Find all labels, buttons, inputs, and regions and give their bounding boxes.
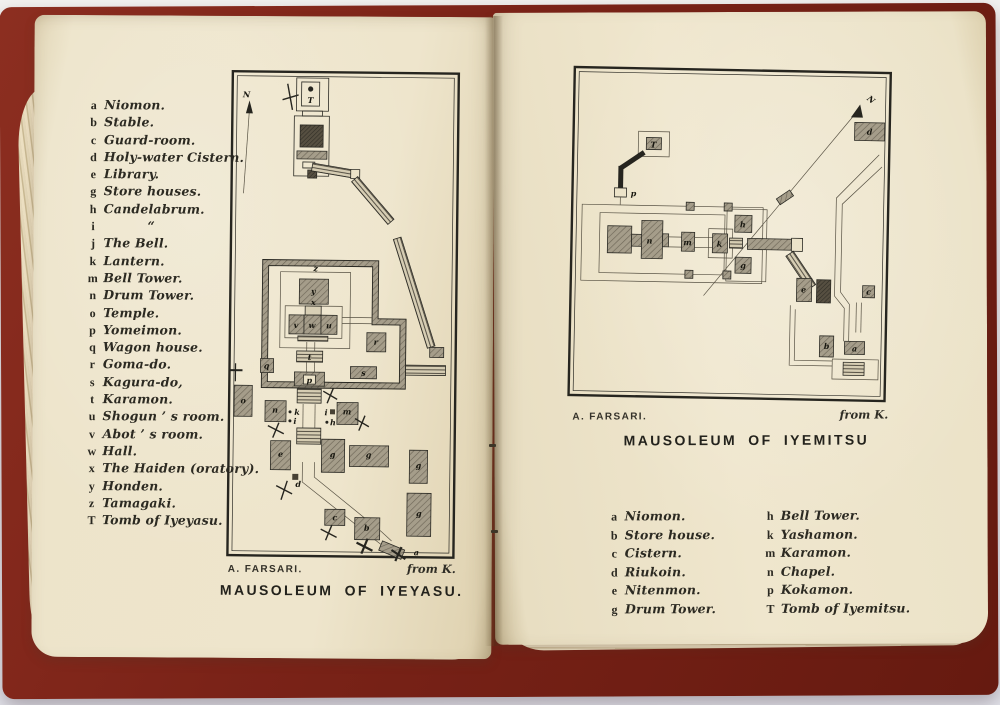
legend-item: cCistern. [607,545,763,564]
legend-item: mBell Tower. [85,270,235,288]
legend-key: j [85,236,100,251]
legend-label: Niomon. [104,97,165,112]
kokamon-gate: p [614,188,637,205]
library-building: e [270,441,290,470]
legend-key: d [86,150,101,165]
legend-key: m [763,546,778,561]
map-label-e: e [278,449,283,459]
legend-item: TTomb of Iyemitsu. [763,600,919,619]
iyemitsu-legend: aNiomon. bStore house. cCistern. dRiukoi… [607,507,919,620]
legend-label: Abot ’ s room. [102,426,203,442]
legend-label: Holy-water Cistern. [104,149,244,165]
map-label-d: d [295,479,301,489]
legend-label: Shogun ’ s room. [103,409,225,425]
legend-key: T [84,513,99,528]
right-page: N d T p [493,11,988,645]
svg-text:g: g [330,449,336,459]
legend-key: n [85,288,100,303]
legend-key: e [607,584,622,599]
niomon-gate-compound: b a [819,336,879,380]
legend-key: T [763,602,778,617]
source-note: from K. [407,562,456,576]
legend-item: gStore houses. [86,184,236,202]
legend-item: wHall. [84,443,234,461]
legend-label: Karamon. [781,545,851,560]
legend-key: n [763,565,778,580]
map-label-a: a [852,343,857,353]
legend-key: g [86,185,101,200]
map-label-i: i [324,407,327,417]
legend-item: xThe Haiden (oratory). [84,460,234,478]
map-label-m: m [343,406,352,416]
map-label-p: p [307,375,313,385]
legend-label: Wagon house. [103,339,203,355]
map-label-b: b [824,341,830,351]
legend-label: Chapel. [781,563,835,578]
legend-key: m [85,271,100,286]
map-label-t: t [308,352,312,362]
legend-key: c [86,133,101,148]
legend-label: Yomeimon. [103,322,182,337]
legend-label: Guard-room. [104,132,195,147]
legend-label: Goma-do. [103,357,171,372]
legend-label: Honden. [102,478,163,493]
tomb-of-iyeyasu-enclosure: T [282,78,330,179]
legend-item: kYashamon. [763,526,919,545]
map-label-T: T [308,95,315,105]
stairway-path [729,189,818,290]
legend-label: Bell Tower. [781,508,860,523]
legend-item: vAbot ’ s room. [84,426,234,444]
roads [789,153,882,367]
map-label-p: p [631,188,637,198]
legend-item: kLantern. [85,253,235,271]
legend-key: s [85,375,100,390]
riukoin-building: d [854,122,884,141]
iyeyasu-legend: aNiomon. bStable. cGuard-room. dHoly-wat… [84,97,236,530]
legend-label: Tomb of Iyemitsu. [781,600,910,615]
legend-item: rGoma-do. [85,357,235,375]
legend-key: t [85,392,100,407]
svg-text:N: N [864,93,877,106]
map-label-m: m [683,237,692,247]
map-label-e: e [801,284,806,294]
legend-label: Nitenmon. [625,583,701,598]
legend-key: d [607,565,622,580]
legend-key: p [763,583,778,598]
iyemitsu-title: MAUSOLEUM OF IYEMITSU [586,431,906,448]
svg-text:N: N [242,89,251,99]
legend-label: Hall. [102,443,137,458]
map-label-c: c [866,287,871,297]
map-credits: A. FARSARI. from K. [572,407,888,422]
legend-key: h [763,509,778,524]
map-label-n: n [272,405,278,415]
yomeimon-gate: p [294,372,324,386]
legend-label: Lantern. [103,253,164,268]
legend-key: i [86,219,101,234]
map-label-z: z [312,263,318,273]
legend-key: k [85,254,100,269]
legend-item: gDrum Tower. [607,601,763,620]
legend-item: tKaramon. [85,391,235,409]
stable-building: b [354,518,379,554]
legend-item: TTomb of Iyeyasu. [84,512,234,530]
iyeyasu-plan: N T [225,69,461,562]
legend-item: hBell Tower. [763,507,919,526]
photo-background: aNiomon. bStable. cGuard-room. dHoly-wat… [0,0,1000,705]
legend-key: u [85,409,100,424]
legend-label: Drum Tower. [625,601,716,616]
map-label-c: c [332,512,337,522]
legend-key: q [85,340,100,355]
temple-building: o [229,363,253,416]
source-note: from K. [839,407,888,421]
legend-item: pKokamon. [763,582,919,601]
legend-ditto-mark: “ [104,218,155,233]
legend-item: uShogun ’ s room. [85,408,235,426]
iyemitsu-plan: N d T p [567,65,893,403]
photographer-credit: A. FARSARI. [228,564,303,575]
legend-item: zTamagaki. [84,495,234,513]
map-credits: A. FARSARI. from K. [228,561,456,576]
cistern: c [862,286,874,298]
legend-key: y [84,479,99,494]
legend-item: aNiomon. [607,508,763,527]
map-label-d: d [867,127,873,137]
map-label-h: h [740,219,746,229]
map-label-n: n [647,235,653,245]
legend-label: Stable. [104,114,154,129]
legend-item: i“ [86,218,236,236]
svg-text:g: g [416,508,422,518]
tomb-of-iyemitsu: T [621,131,670,189]
legend-item: nDrum Tower. [85,287,235,305]
legend-key: c [607,547,622,562]
inner-courtyard: z y x v w u t q r s [260,262,386,378]
legend-item: cGuard-room. [86,132,236,150]
legend-label: Drum Tower. [103,287,194,302]
legend-item: nChapel. [763,563,919,582]
legend-item: yHonden. [84,478,234,496]
legend-label: Cistern. [625,545,682,560]
map-label-x: x [310,297,316,307]
legend-item: mKaramon. [763,545,919,564]
binding-stitch [491,530,498,533]
legend-key: b [607,528,622,543]
legend-key: o [85,306,100,321]
legend-label: Store house. [625,527,715,542]
legend-key: x [84,461,99,476]
legend-column-1: aNiomon. bStore house. cCistern. dRiukoi… [607,508,763,620]
svg-text:g: g [366,450,372,460]
legend-item: pYomeimon. [85,322,235,340]
map-label-i: i [293,416,296,426]
legend-item: eLibrary. [86,166,236,184]
legend-item: bStore house. [607,527,763,546]
photographer-credit: A. FARSARI. [572,411,647,422]
map-label-g: g [740,260,746,270]
legend-key: g [607,602,622,617]
legend-key: h [86,202,101,217]
legend-label: The Bell. [103,236,168,251]
legend-label: Niomon. [625,508,686,523]
legend-label: Kokamon. [781,582,853,597]
map-label-k: k [717,239,723,249]
legend-item: eNitenmon. [607,582,763,601]
legend-label: Store houses. [104,184,202,200]
svg-text:g: g [416,460,422,470]
left-page: aNiomon. bStable. cGuard-room. dHoly-wat… [31,15,494,659]
map-label-a: a [414,547,419,557]
legend-label: Library. [104,166,159,181]
guard-room-building: c [321,509,345,540]
map-label-w: w [309,320,317,330]
legend-label: Yashamon. [781,526,858,541]
legend-item: hCandelabrum. [86,201,236,219]
legend-column-2: hBell Tower. kYashamon. mKaramon. nChape… [763,507,919,619]
legend-label: Karamon. [103,391,173,406]
legend-label: Tamagaki. [102,495,176,510]
legend-item: jThe Bell. [85,235,235,253]
iyeyasu-title: MAUSOLEUM OF IYEYASU. [172,582,512,600]
legend-item: qWagon house. [85,339,235,357]
map-label-o: o [240,395,246,405]
map-label-u: u [326,320,332,330]
legend-item: dRiukoin. [607,564,763,583]
legend-label: Bell Tower. [103,270,182,285]
legend-key: w [84,444,99,459]
binding-stitch [489,444,496,447]
legend-key: b [86,115,101,130]
legend-item: oTemple. [85,305,235,323]
map-label-q: q [264,361,270,371]
legend-key: k [763,527,778,542]
legend-key: z [84,496,99,511]
legend-key: p [85,323,100,338]
legend-item: dHoly-water Cistern. [86,149,236,167]
map-label-h: h [330,417,336,427]
legend-label: Tomb of Iyeyasu. [102,512,223,528]
legend-item: bStable. [86,114,236,132]
legend-label: Temple. [103,305,159,320]
legend-label: Kagura-do, [103,374,183,389]
legend-label: Riukoin. [625,564,686,579]
legend-key: a [607,509,622,524]
middle-court: n k i i h m [265,388,370,445]
legend-item: sKagura-do, [85,374,235,392]
legend-key: r [85,358,100,373]
legend-label: Candelabrum. [104,201,205,217]
legend-item: aNiomon. [86,97,236,115]
legend-key: a [86,98,101,113]
north-arrow: N [241,89,253,193]
legend-key: v [84,427,99,442]
map-label-s: s [361,368,366,378]
legend-key: e [86,167,101,182]
map-label-b: b [364,523,370,533]
map-label-v: v [294,320,299,330]
